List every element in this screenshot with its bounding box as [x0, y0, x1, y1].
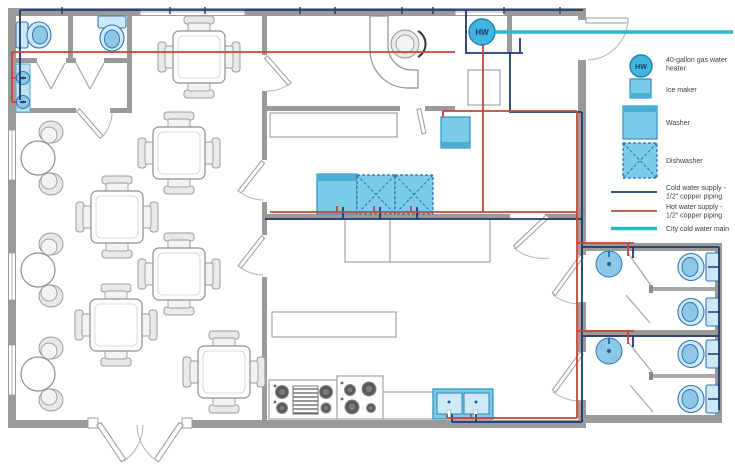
svg-text:1/2" copper piping: 1/2" copper piping	[666, 213, 722, 220]
ice-maker	[441, 117, 470, 148]
floor-plan-canvas: HW	[0, 0, 735, 469]
svg-text:HW: HW	[635, 64, 647, 71]
svg-text:Washer: Washer	[666, 120, 691, 127]
dining-table-4-seat	[76, 176, 158, 258]
dining-table-2-seat	[21, 121, 63, 195]
svg-text:Ice maker: Ice maker	[666, 87, 697, 94]
legend-washer: Washer	[623, 106, 691, 139]
dining-table-4-seat	[138, 112, 220, 194]
exterior-side-door	[586, 18, 628, 60]
restroom-sink	[596, 338, 622, 364]
legend-hot-line: Hot water supply - 1/2" copper piping	[611, 204, 723, 220]
kitchen-sink	[433, 389, 493, 419]
dining-table-2-seat	[21, 233, 63, 307]
dishwasher-1	[357, 175, 395, 214]
range-1	[269, 380, 337, 419]
restroom-sink	[596, 251, 622, 277]
stall-doors	[37, 63, 104, 89]
dining-table-2-seat	[21, 337, 63, 411]
toilet	[16, 22, 51, 48]
svg-text:Dishwasher: Dishwasher	[666, 158, 703, 165]
svg-text:heater: heater	[666, 66, 687, 73]
legend-ice-maker: Ice maker	[630, 79, 697, 98]
dishwasher-2	[395, 175, 433, 214]
restaurant-floor-plan: HW	[0, 0, 735, 469]
svg-text:Cold water supply -: Cold water supply -	[666, 185, 727, 192]
legend-city-line: City cold water main	[611, 226, 729, 233]
svg-text:1/2" copper piping: 1/2" copper piping	[666, 194, 722, 201]
legend-water-heater: HW 40-gallon gas water heater	[630, 55, 728, 77]
restroom-sinks	[16, 64, 30, 112]
utility-table	[468, 70, 500, 105]
dining-table-4-seat	[158, 16, 240, 98]
dining-table-4-seat	[183, 331, 265, 413]
water-heater: HW	[469, 19, 495, 45]
legend-cold-line: Cold water supply - 1/2" copper piping	[611, 185, 727, 201]
kitchen-counters	[270, 113, 490, 419]
svg-text:40-gallon gas water: 40-gallon gas water	[666, 57, 728, 64]
range-2	[337, 376, 383, 419]
entrance-door	[88, 418, 192, 462]
toilet	[98, 16, 126, 51]
water-heater-label: HW	[475, 28, 489, 37]
legend-dishwasher: Dishwasher	[623, 143, 703, 178]
svg-text:Hot water supply -: Hot water supply -	[666, 204, 723, 211]
dining-table-4-seat	[75, 284, 157, 366]
dining-table-4-seat	[138, 233, 220, 315]
svg-text:City cold water main: City cold water main	[666, 226, 729, 233]
legend: HW 40-gallon gas water heater Ice maker …	[611, 55, 729, 233]
